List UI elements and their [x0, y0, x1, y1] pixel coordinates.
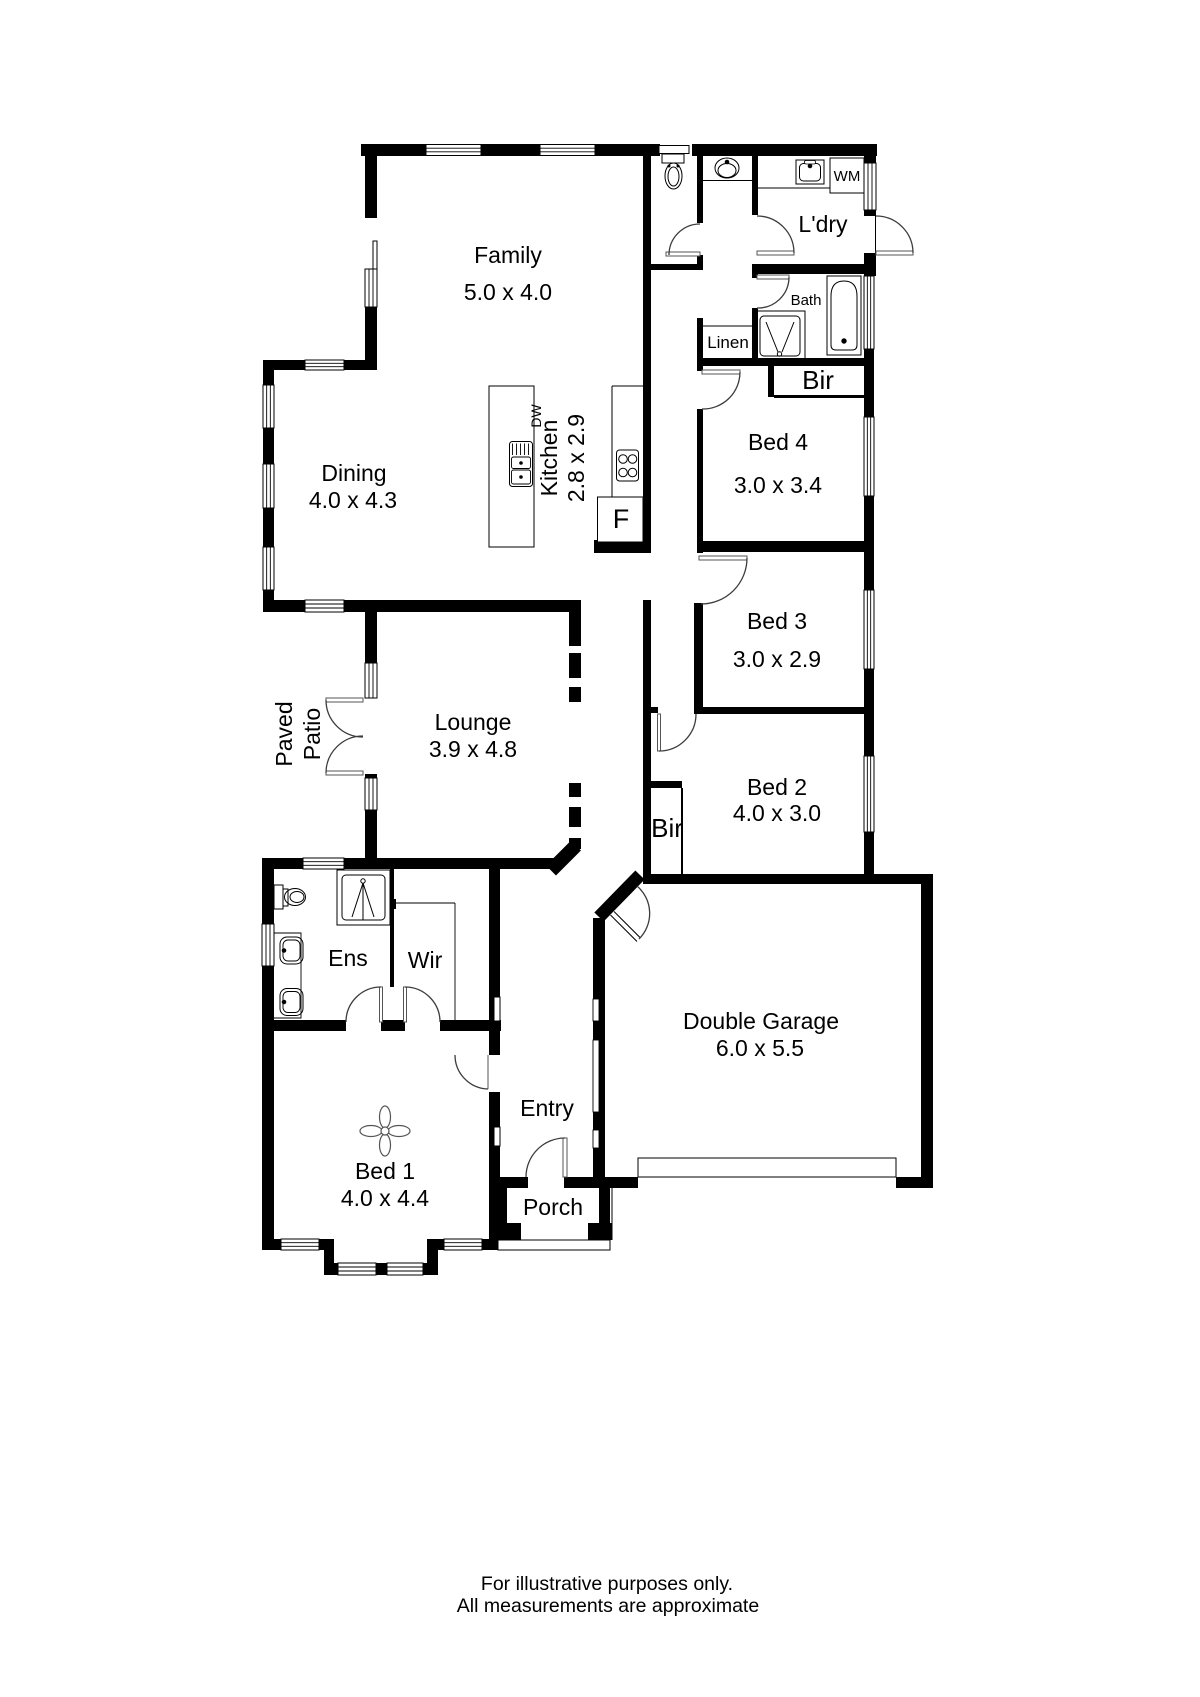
svg-text:Porch: Porch [523, 1194, 583, 1220]
svg-text:2.8 x 2.9: 2.8 x 2.9 [563, 414, 589, 502]
svg-text:Paved: Paved [271, 701, 297, 766]
svg-text:Lounge: Lounge [435, 709, 512, 735]
svg-text:Patio: Patio [299, 708, 325, 760]
svg-text:DW: DW [528, 404, 544, 428]
svg-text:Wir: Wir [408, 947, 443, 973]
svg-text:F: F [613, 504, 630, 534]
svg-text:Family: Family [474, 242, 542, 268]
svg-text:Linen: Linen [707, 333, 749, 352]
svg-text:5.0 x 4.0: 5.0 x 4.0 [464, 279, 552, 305]
svg-text:Bir: Bir [802, 365, 834, 395]
svg-text:Ens: Ens [328, 945, 368, 971]
svg-text:6.0 x 5.5: 6.0 x 5.5 [716, 1035, 804, 1061]
svg-text:Bed 4: Bed 4 [748, 429, 808, 455]
svg-text:3.0 x 2.9: 3.0 x 2.9 [733, 646, 821, 672]
svg-text:Bed 1: Bed 1 [355, 1158, 415, 1184]
svg-text:L'dry: L'dry [798, 211, 848, 237]
svg-text:Entry: Entry [520, 1095, 574, 1121]
svg-text:3.0 x 3.4: 3.0 x 3.4 [734, 472, 822, 498]
svg-text:Kitchen: Kitchen [536, 420, 562, 497]
svg-text:4.0 x 3.0: 4.0 x 3.0 [733, 800, 821, 826]
svg-text:Bath: Bath [791, 292, 822, 309]
svg-text:All measurements are approxima: All measurements are approximate [457, 1595, 759, 1617]
svg-text:4.0 x 4.4: 4.0 x 4.4 [341, 1185, 429, 1211]
svg-text:Bed 3: Bed 3 [747, 608, 807, 634]
svg-text:WM: WM [834, 168, 861, 185]
svg-text:For illustrative purposes only: For illustrative purposes only. [481, 1573, 733, 1595]
svg-text:Bed 2: Bed 2 [747, 774, 807, 800]
svg-text:Bir: Bir [651, 813, 683, 843]
svg-text:3.9 x 4.8: 3.9 x 4.8 [429, 736, 517, 762]
svg-text:Double Garage: Double Garage [683, 1008, 839, 1034]
svg-text:Dining: Dining [321, 460, 386, 486]
svg-text:4.0 x 4.3: 4.0 x 4.3 [309, 487, 397, 513]
